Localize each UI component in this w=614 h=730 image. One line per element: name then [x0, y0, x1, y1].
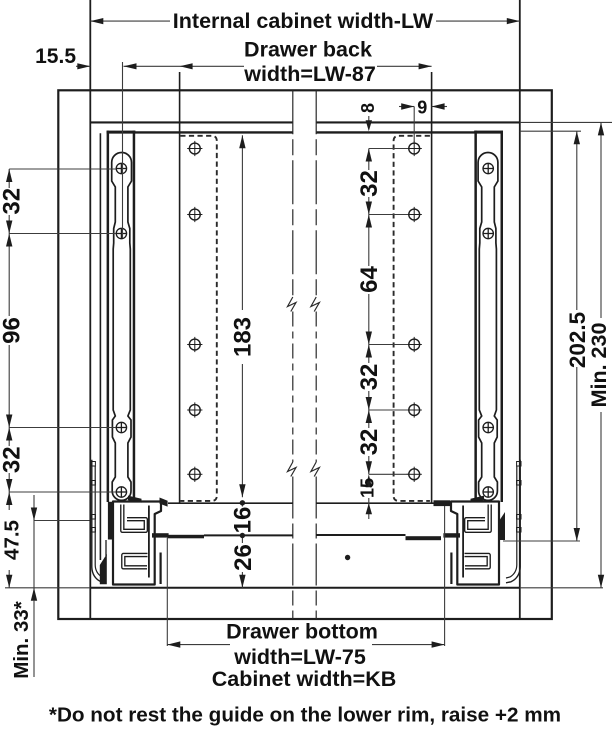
- svg-text:Min. 230: Min. 230: [587, 323, 611, 408]
- svg-text:32: 32: [356, 170, 383, 197]
- svg-text:Drawer back: Drawer back: [244, 38, 372, 62]
- svg-text:96: 96: [0, 317, 25, 344]
- svg-text:183: 183: [229, 317, 256, 357]
- svg-text:9: 9: [417, 98, 427, 118]
- svg-text:47.5: 47.5: [0, 520, 23, 560]
- svg-text:32: 32: [0, 446, 25, 473]
- svg-text:32: 32: [356, 429, 383, 456]
- svg-text:*Do not rest the guide on the: *Do not rest the guide on the lower rim,…: [49, 704, 561, 727]
- svg-text:32: 32: [356, 364, 383, 391]
- svg-text:width=LW-87: width=LW-87: [243, 62, 376, 86]
- svg-text:26: 26: [230, 544, 257, 571]
- svg-text:15: 15: [358, 478, 378, 498]
- svg-text:Cabinet width=KB: Cabinet width=KB: [212, 667, 397, 691]
- svg-text:64: 64: [356, 266, 383, 293]
- svg-text:Drawer bottom: Drawer bottom: [226, 620, 378, 644]
- svg-text:16: 16: [229, 507, 256, 534]
- svg-text:32: 32: [0, 188, 25, 215]
- svg-text:width=LW-75: width=LW-75: [233, 645, 366, 669]
- svg-text:8: 8: [358, 103, 378, 113]
- svg-text:15.5: 15.5: [35, 45, 76, 68]
- svg-text:Min. 33*: Min. 33*: [10, 601, 33, 678]
- svg-text:Internal cabinet width-LW: Internal cabinet width-LW: [173, 9, 434, 33]
